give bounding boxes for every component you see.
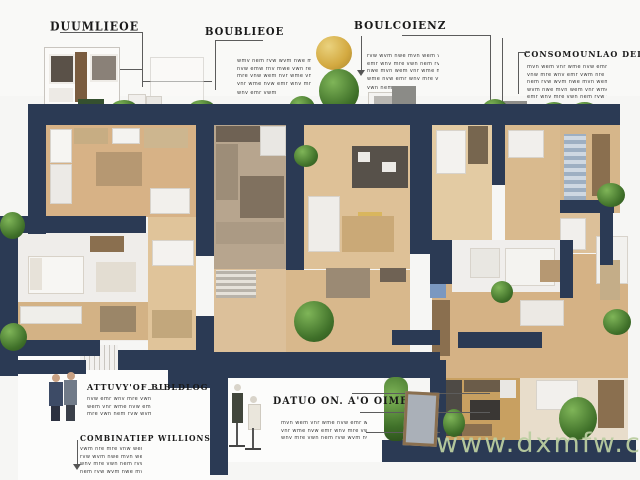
arrowhead-icon: [357, 70, 365, 76]
annotation-block-e: vwm nre mre vnw wem nvr wme vnw emr wnv …: [80, 446, 142, 476]
mannequin-icon: [245, 396, 261, 452]
furniture-block: [74, 128, 108, 144]
wall-segment: [28, 104, 620, 125]
rug: [342, 216, 394, 252]
annotation-heading-7: DATUO ON. A'O OIMENE: [273, 396, 426, 408]
furniture-block: [50, 129, 72, 163]
bush-icon: [603, 309, 631, 335]
wall-segment: [196, 316, 214, 356]
annotation-block-f: mvn wem vnr wme nvw emr wnv mre vwn nem …: [281, 420, 367, 443]
annotation-block-d: nvw emr wnv mre vwn nem rvw wvm nwe mvn …: [87, 396, 151, 419]
wall-segment: [228, 368, 440, 378]
mannequin-pole: [236, 423, 238, 445]
mannequin-body: [232, 393, 243, 423]
cabinet-drawer: [49, 88, 73, 102]
furniture-block: [150, 188, 190, 214]
tree-yellow-icon: [316, 36, 352, 70]
cabinet-post: [75, 52, 87, 102]
bush-icon: [0, 212, 25, 239]
wardrobe: [432, 300, 450, 356]
desk: [470, 248, 500, 278]
mannequin-head: [234, 384, 241, 391]
counter: [464, 380, 504, 392]
furniture-block: [144, 128, 188, 148]
plant-icon: [294, 145, 318, 167]
person-icon: [48, 374, 64, 422]
mannequin-base: [229, 445, 245, 447]
leader-line: [148, 389, 164, 390]
pillow: [30, 258, 42, 290]
fridge: [260, 126, 286, 156]
sofa: [308, 196, 340, 252]
leader-line: [142, 32, 143, 87]
wall-segment: [392, 330, 440, 345]
wall-segment: [210, 352, 228, 475]
cabinet-window: [49, 54, 75, 84]
counter: [216, 222, 284, 244]
annotation-heading-6: COMBINATIEP WILLIONS: [80, 434, 211, 444]
wardrobe: [468, 126, 488, 164]
wall-segment: [196, 104, 214, 256]
wall-segment: [458, 332, 542, 348]
staircase: [216, 270, 256, 298]
kitchen-island: [240, 176, 284, 218]
person-icon: [63, 372, 78, 422]
kitchen-island: [100, 306, 136, 332]
counter: [20, 306, 82, 324]
sink: [358, 152, 370, 162]
leader-line: [77, 440, 78, 464]
table: [326, 268, 370, 298]
rug: [96, 262, 136, 292]
annotation-heading-5: ATTUVY'OF BIBLDLOG: [87, 382, 208, 393]
furniture-block: [50, 164, 72, 204]
person-head: [52, 374, 60, 382]
person-legs: [51, 406, 60, 421]
rug: [430, 284, 446, 298]
sideboard: [380, 268, 406, 282]
mannequin-body: [248, 404, 261, 430]
person-body: [64, 380, 77, 405]
annotation-heading-3: BOULCOIENZ: [354, 20, 446, 33]
wardrobe: [598, 380, 624, 428]
watermark: www.dxmfw.com: [436, 428, 640, 459]
annotation-block-c: mvn wem vnr wme nvw emr wnv mre vwn nem …: [527, 64, 607, 102]
leader-line: [215, 40, 263, 41]
bush-icon: [294, 301, 334, 342]
wall-segment: [200, 352, 440, 368]
annotation-heading-2: BOUBLIEOE: [205, 27, 284, 39]
leader-line: [402, 35, 490, 36]
annotation-block-a: wmv nem rvw wvm nwe mvn wem vnr wme nvw …: [237, 58, 311, 97]
person-head: [67, 372, 75, 380]
leader-line: [60, 32, 143, 33]
leader-line: [518, 52, 530, 53]
mannequin-icon: [229, 384, 245, 450]
person-body: [49, 382, 63, 406]
furniture-block: [152, 310, 192, 338]
furniture-block: [152, 240, 194, 266]
wall-segment: [600, 213, 613, 265]
cooktop: [382, 162, 396, 172]
wall-segment: [410, 122, 432, 254]
mannequin-base: [245, 448, 261, 450]
mannequin-head: [250, 396, 257, 403]
appliance: [500, 380, 516, 398]
mannequin-pole: [252, 428, 254, 448]
furniture-block: [96, 152, 142, 186]
bed: [508, 130, 544, 158]
person-legs: [66, 405, 75, 421]
annotation-heading-4: CONSOMOUNLAO DELJANY: [524, 49, 640, 60]
leader-line: [518, 52, 519, 94]
kitchen-island: [470, 400, 500, 420]
leader-line: [361, 36, 362, 70]
wall-segment: [28, 104, 46, 234]
dresser: [90, 236, 124, 252]
sofa: [520, 300, 564, 326]
cabinet-window: [90, 54, 118, 82]
wall-segment: [492, 125, 505, 185]
floorplan-illustration: DUUMLIEOE BOUBLIEOE BOULCOIENZ CONSOMOUN…: [0, 0, 640, 480]
counter: [216, 144, 238, 200]
bed: [564, 134, 586, 200]
wall-segment: [430, 240, 452, 284]
plant-icon: [491, 281, 513, 303]
wall-segment: [286, 104, 304, 270]
bush-icon: [597, 183, 625, 207]
bed: [436, 130, 466, 174]
wall-segment: [560, 240, 573, 298]
framed-art: [403, 391, 440, 447]
bush-icon: [0, 323, 27, 351]
furniture-block: [600, 260, 620, 300]
furniture-block: [112, 128, 140, 144]
leader-line: [215, 40, 216, 90]
